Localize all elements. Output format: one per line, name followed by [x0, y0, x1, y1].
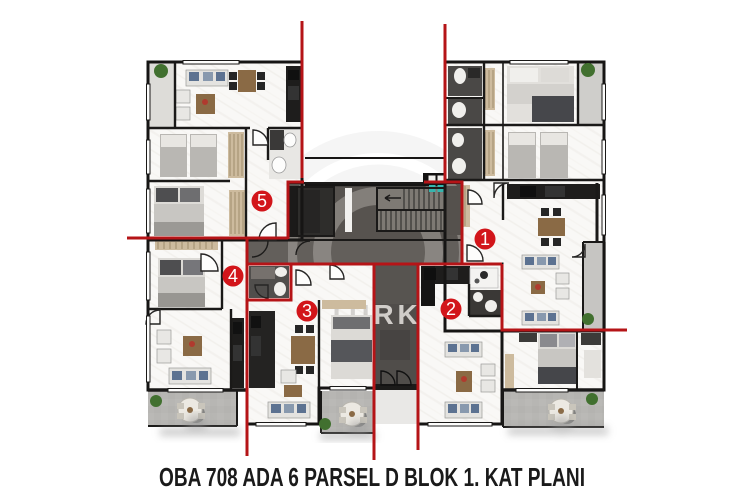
svg-text:5: 5 [257, 191, 267, 211]
svg-text:2: 2 [446, 299, 456, 319]
svg-text:1: 1 [480, 229, 490, 249]
svg-text:4: 4 [228, 266, 238, 286]
svg-text:OBA 708 ADA 6 PARSEL D BLOK 1.: OBA 708 ADA 6 PARSEL D BLOK 1. KAT PLANI [159, 464, 585, 492]
svg-text:3: 3 [302, 301, 312, 321]
